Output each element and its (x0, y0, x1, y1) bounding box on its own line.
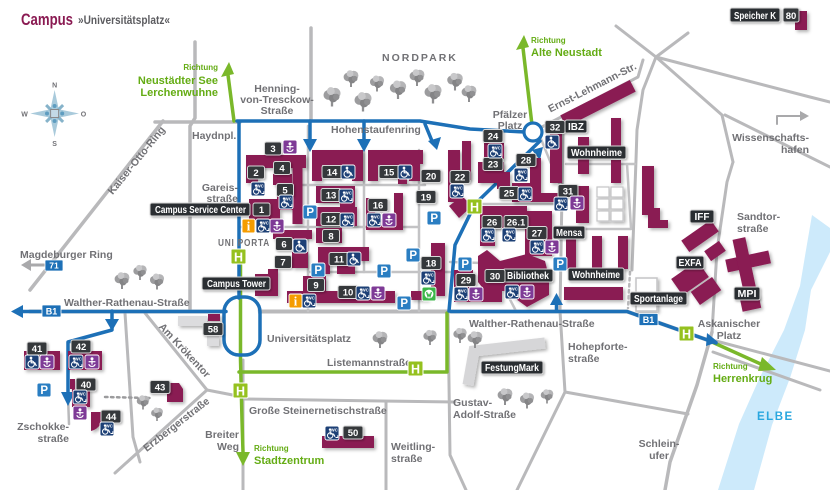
svg-text:27: 27 (532, 229, 543, 240)
svg-text:»Universitätsplatz«: »Universitätsplatz« (78, 13, 170, 27)
svg-text:9: 9 (313, 281, 318, 292)
svg-text:EXFA: EXFA (679, 258, 702, 269)
svg-text:Neustädter See: Neustädter See (138, 75, 218, 87)
svg-text:30: 30 (490, 272, 501, 283)
svg-text:NORDPARK: NORDPARK (382, 52, 458, 64)
svg-text:19: 19 (421, 193, 432, 204)
svg-text:41: 41 (32, 344, 43, 355)
svg-text:Hohepforte-: Hohepforte- (568, 341, 628, 353)
svg-text:50: 50 (348, 428, 359, 439)
svg-text:MPI: MPI (738, 289, 757, 300)
svg-text:Campus Tower: Campus Tower (207, 279, 266, 290)
svg-text:B1: B1 (46, 307, 58, 317)
svg-text:43: 43 (155, 383, 166, 394)
svg-text:80: 80 (786, 11, 797, 22)
svg-text:Wissenschafts-: Wissenschafts- (732, 132, 809, 144)
svg-text:42: 42 (76, 342, 87, 353)
svg-text:Stadtzentrum: Stadtzentrum (254, 455, 325, 467)
svg-text:Bibliothek: Bibliothek (507, 271, 549, 282)
svg-text:Breiter: Breiter (205, 429, 239, 441)
svg-text:24: 24 (488, 132, 499, 143)
svg-text:W: W (21, 112, 28, 119)
svg-text:71: 71 (49, 261, 59, 271)
svg-text:Gustav-: Gustav- (453, 397, 493, 409)
svg-text:4: 4 (279, 164, 285, 175)
svg-text:Platz: Platz (717, 330, 742, 342)
svg-text:11: 11 (334, 255, 345, 266)
svg-text:Schlein-: Schlein- (639, 438, 680, 450)
svg-text:IBZ: IBZ (568, 122, 584, 133)
svg-text:58: 58 (208, 325, 219, 336)
svg-text:13: 13 (326, 191, 337, 202)
svg-text:Hohenstaufenring: Hohenstaufenring (331, 124, 421, 136)
svg-text:32: 32 (550, 123, 561, 134)
svg-text:Universitätsplatz: Universitätsplatz (267, 333, 351, 345)
svg-text:Mensa: Mensa (556, 228, 582, 239)
svg-text:26.1: 26.1 (507, 218, 526, 229)
svg-text:Richtung: Richtung (531, 36, 566, 45)
svg-text:28: 28 (521, 156, 532, 167)
svg-text:22: 22 (455, 173, 466, 184)
svg-text:Richtung: Richtung (713, 362, 748, 371)
svg-text:Herrenkrug: Herrenkrug (713, 373, 772, 385)
svg-text:Richtung: Richtung (254, 444, 289, 453)
svg-text:Campus Service Center: Campus Service Center (155, 205, 246, 216)
svg-text:29: 29 (461, 276, 472, 287)
svg-text:14: 14 (327, 168, 338, 179)
svg-text:10: 10 (343, 288, 354, 299)
svg-text:Askanischer: Askanischer (698, 318, 760, 330)
svg-text:44: 44 (106, 412, 117, 423)
svg-text:6: 6 (281, 240, 286, 251)
svg-text:straße: straße (737, 223, 769, 235)
svg-text:UNI PORTA: UNI PORTA (218, 237, 270, 249)
svg-text:15: 15 (384, 168, 395, 179)
svg-text:O: O (81, 112, 87, 119)
svg-text:Speicher K: Speicher K (734, 11, 777, 22)
svg-text:Lerchenwuhne: Lerchenwuhne (140, 87, 218, 99)
svg-text:IFF: IFF (695, 212, 710, 223)
svg-text:26: 26 (487, 218, 498, 229)
svg-text:16: 16 (373, 201, 384, 212)
svg-text:Walther-Rathenau-Straße: Walther-Rathenau-Straße (64, 297, 190, 309)
svg-text:23: 23 (488, 160, 499, 171)
svg-text:Große Steinernetischstraße: Große Steinernetischstraße (249, 405, 387, 417)
svg-text:Wohnheime: Wohnheime (571, 148, 622, 159)
svg-text:straße: straße (568, 353, 600, 365)
svg-text:Adolf-Straße: Adolf-Straße (453, 409, 516, 421)
svg-text:Listemannstraße: Listemannstraße (327, 357, 411, 369)
svg-text:Wohnheime: Wohnheime (572, 270, 620, 281)
svg-text:2: 2 (253, 168, 258, 179)
svg-text:7: 7 (280, 258, 285, 269)
svg-text:Sandtor-: Sandtor- (737, 211, 781, 223)
svg-text:Magdeburger Ring: Magdeburger Ring (20, 249, 113, 261)
svg-text:3: 3 (270, 144, 275, 155)
svg-text:ELBE: ELBE (757, 411, 794, 423)
svg-text:straße: straße (37, 433, 69, 445)
svg-text:FestungMark: FestungMark (485, 363, 539, 374)
svg-text:Alte Neustadt: Alte Neustadt (531, 47, 602, 59)
svg-text:ufer: ufer (649, 450, 669, 462)
svg-text:Sportanlage: Sportanlage (634, 294, 683, 305)
svg-text:Straße: Straße (261, 105, 294, 117)
svg-text:Walther-Rathenau-Straße: Walther-Rathenau-Straße (469, 318, 595, 330)
svg-text:straße: straße (391, 453, 423, 465)
svg-text:Richtung: Richtung (183, 63, 218, 72)
svg-text:20: 20 (426, 172, 437, 183)
svg-text:Haydnpl.: Haydnpl. (192, 130, 236, 142)
svg-text:N: N (52, 83, 57, 90)
svg-text:B1: B1 (643, 315, 655, 325)
svg-text:S: S (52, 141, 57, 148)
svg-text:1: 1 (259, 205, 265, 216)
svg-text:25: 25 (504, 189, 515, 200)
svg-text:Weg: Weg (217, 441, 239, 453)
svg-text:40: 40 (81, 380, 92, 391)
svg-text:Campus: Campus (21, 10, 73, 29)
svg-text:18: 18 (426, 259, 437, 270)
svg-text:Weitling-: Weitling- (391, 441, 436, 453)
svg-text:8: 8 (328, 232, 333, 243)
svg-text:12: 12 (326, 215, 337, 226)
svg-text:hafen: hafen (781, 144, 809, 156)
svg-text:Zschokke-: Zschokke- (17, 421, 69, 433)
